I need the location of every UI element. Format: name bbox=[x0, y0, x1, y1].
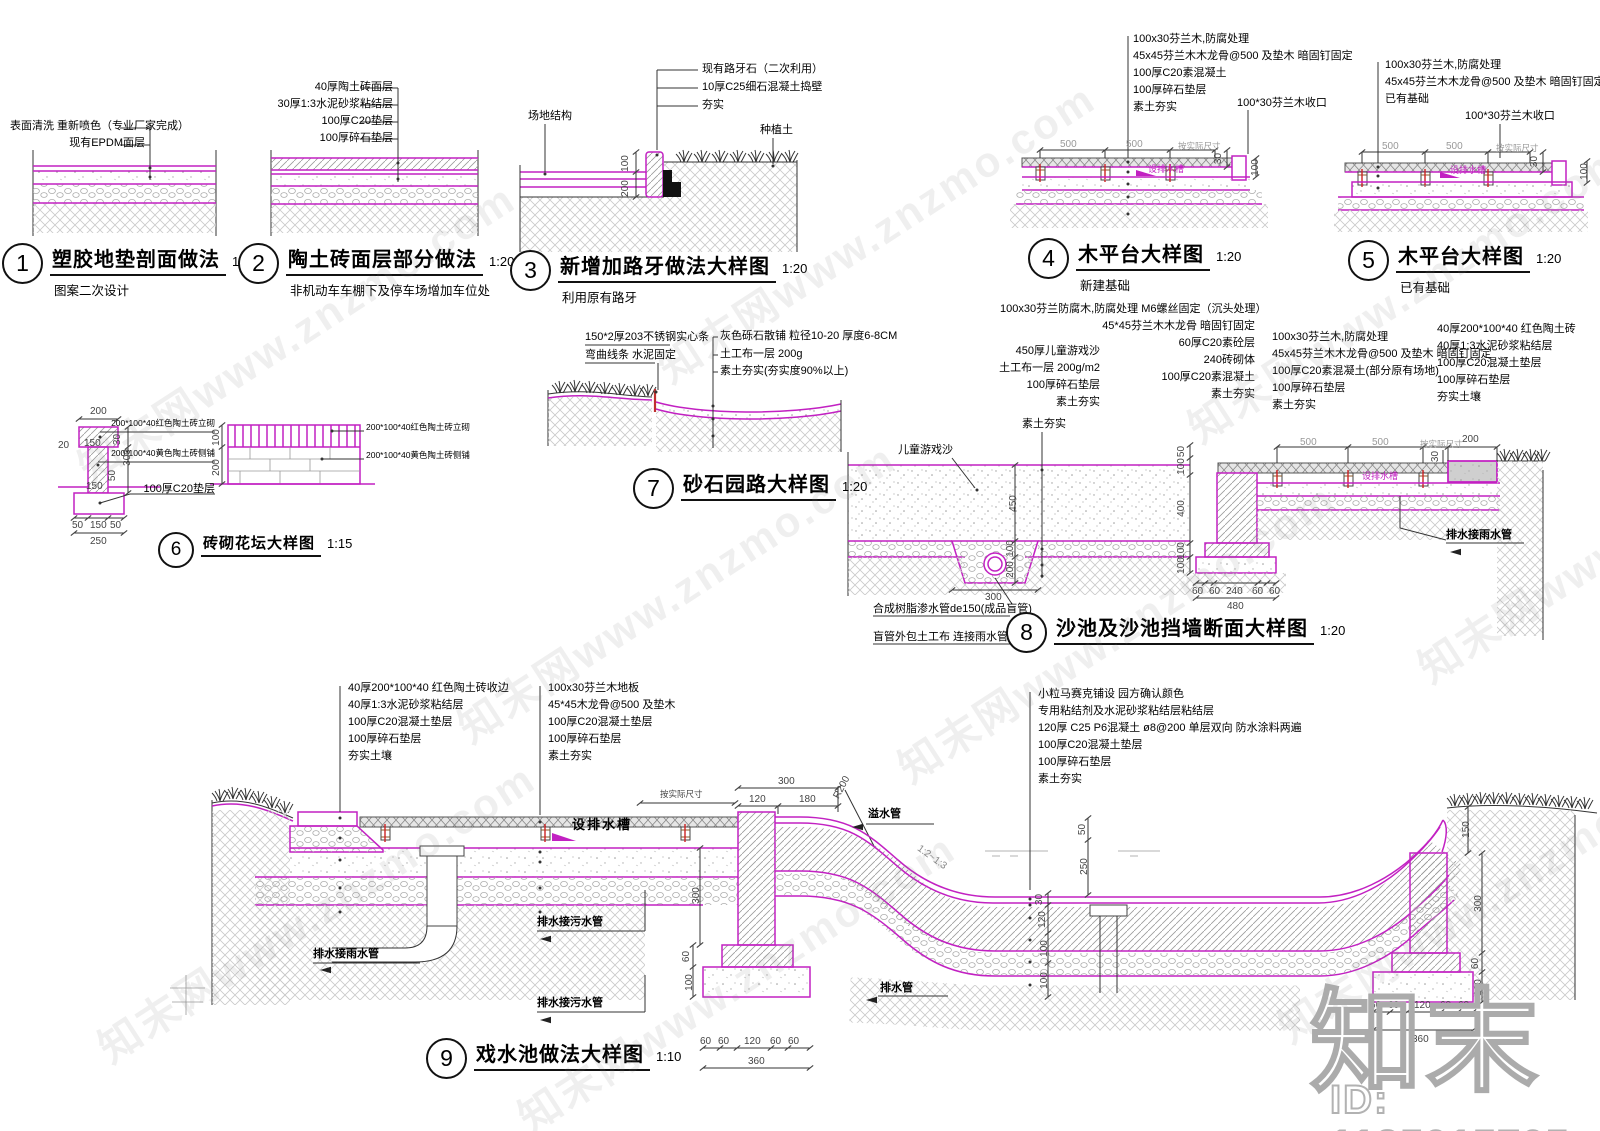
detail-title-6: 6 砖砌花坛大样图1:15 bbox=[158, 532, 352, 568]
material-label: 100厚C20混凝土垫层 bbox=[548, 716, 653, 729]
dim-text: 450 bbox=[1008, 495, 1019, 512]
dim-text: 30 bbox=[1213, 153, 1224, 164]
detail-4-drawing bbox=[1010, 36, 1268, 228]
material-label: 土工布一层 200g bbox=[720, 348, 803, 361]
detail-number: 5 bbox=[1348, 240, 1389, 281]
material-label: 小粒马赛克铺设 园方确认颜色 bbox=[1038, 688, 1184, 701]
dim-text: 400 bbox=[1176, 500, 1187, 517]
detail-number: 9 bbox=[426, 1038, 467, 1079]
material-label: 专用粘结剂及水泥砂浆粘结层粘结层 bbox=[1038, 705, 1214, 718]
dim-text: 200 bbox=[620, 180, 631, 197]
material-label: 10厚C25细石混凝土捣壁 bbox=[702, 81, 822, 94]
material-label: 100厚碎石垫层 bbox=[1133, 84, 1206, 97]
note-label: 设排水槽 bbox=[1148, 163, 1184, 176]
detail-subtitle: 新建基础 bbox=[1080, 275, 1241, 294]
dim-text: 200 bbox=[90, 406, 107, 417]
dim-text: 300 bbox=[778, 776, 795, 787]
material-label: 60厚C20素砼层 bbox=[1000, 337, 1255, 350]
detail-title-9: 9 戏水池做法大样图1:10 bbox=[426, 1038, 681, 1079]
material-label: 100厚碎石垫层 bbox=[548, 733, 621, 746]
material-label: 场地结构 bbox=[528, 110, 572, 123]
detail-title: 木平台大样图 bbox=[1396, 240, 1530, 273]
dim-text: 60 bbox=[1370, 1000, 1381, 1011]
material-label: 灰色砾石散铺 粒径10-20 厚度6-8CM bbox=[720, 330, 897, 343]
material-label: 100厚碎石垫层 bbox=[1437, 374, 1510, 387]
dim-text: 300 bbox=[985, 592, 1002, 603]
dim-text: 150 bbox=[86, 481, 103, 492]
dim-text: 300 bbox=[122, 449, 133, 466]
detail-number: 4 bbox=[1028, 238, 1069, 279]
dim-text: 60 bbox=[1470, 958, 1481, 969]
dim-text: 200 bbox=[211, 459, 222, 476]
material-label: 100厚C20垫层 bbox=[265, 115, 393, 128]
detail-scale: 1:10 bbox=[656, 1049, 681, 1064]
dim-text: 100 bbox=[211, 429, 222, 446]
detail-number: 6 bbox=[158, 532, 194, 568]
note-label: 排水管 bbox=[880, 982, 913, 995]
dim-text: 50 bbox=[1077, 824, 1088, 835]
note-label: 溢水管 bbox=[868, 808, 901, 821]
material-label: 100x30芬兰防腐木,防腐处理 M6螺丝固定（沉头处理） bbox=[1000, 303, 1255, 316]
dim-text: 50 bbox=[1176, 446, 1187, 457]
material-label: 100厚C20素混凝土 bbox=[1133, 67, 1227, 80]
detail-scale: 1:20 bbox=[782, 261, 807, 276]
dim-text: 100 bbox=[620, 155, 631, 172]
detail-title: 砂石园路大样图 bbox=[681, 468, 836, 501]
note-label: 排水接污水管 bbox=[537, 916, 603, 929]
material-label: 弯曲线条 水泥固定 bbox=[585, 349, 676, 362]
dim-text: 100 bbox=[1176, 458, 1187, 475]
detail-title-8: 8 沙池及沙池挡墙断面大样图1:20 bbox=[1006, 612, 1345, 653]
material-label: 已有基础 bbox=[1385, 93, 1429, 106]
dim-text: 250 bbox=[1079, 858, 1090, 875]
detail-title: 木平台大样图 bbox=[1076, 238, 1210, 271]
detail-title-1: 1 塑胶地垫剖面做法1:20 图案二次设计 bbox=[2, 243, 257, 299]
dim-text: 50 bbox=[110, 520, 121, 531]
dim-text: 60 bbox=[700, 1036, 711, 1047]
dim-text: 240 bbox=[1226, 586, 1243, 597]
dim-text: 300 bbox=[1473, 895, 1484, 912]
dim-text: 360 bbox=[1412, 1034, 1429, 1045]
note-label: 排水接雨水管 bbox=[313, 948, 379, 961]
detail-title-3: 3 新增加路牙做法大样图1:20 利用原有路牙 bbox=[510, 250, 807, 306]
material-label: 40厚200*100*40 红色陶土砖 bbox=[1437, 323, 1576, 336]
dim-text: 按实际尺寸 bbox=[1420, 439, 1463, 450]
material-label: 100厚C20混凝土垫层 bbox=[348, 716, 453, 729]
detail-number: 3 bbox=[510, 250, 551, 291]
detail-number: 1 bbox=[2, 243, 43, 284]
detail-scale: 1:20 bbox=[1320, 623, 1345, 638]
dim-text: 60 bbox=[718, 1036, 729, 1047]
dim-text: 60 bbox=[788, 1036, 799, 1047]
material-label: 45x45芬兰木木龙骨@500 及垫木 暗固钉固定 bbox=[1385, 76, 1600, 89]
dim-text: 30 bbox=[1529, 156, 1540, 167]
material-label: 素土夯实 bbox=[1038, 773, 1082, 786]
detail-subtitle: 利用原有路牙 bbox=[562, 287, 807, 306]
material-label: 45*45木龙骨@500 及垫木 bbox=[548, 699, 675, 712]
dim-text: 50 bbox=[72, 520, 83, 531]
material-label: 150*2厚203不锈钢实心条 bbox=[585, 331, 709, 344]
material-label: 100*30芬兰木收口 bbox=[1237, 97, 1327, 110]
material-label: 100厚碎石垫层 bbox=[1038, 756, 1111, 769]
detail-scale: 1:20 bbox=[1536, 251, 1561, 266]
dim-text: 100 bbox=[684, 974, 695, 991]
dim-text: 200 bbox=[1005, 561, 1016, 578]
dim-text: 100 bbox=[1250, 159, 1261, 176]
material-label: 种植土 bbox=[760, 124, 793, 137]
dim-text: 500 bbox=[1372, 437, 1389, 448]
note-label: 盲管外包土工布 连接雨水管网 bbox=[873, 631, 1019, 644]
dim-text: 60 bbox=[770, 1036, 781, 1047]
material-label: 素土夯实(夯实度90%以上) bbox=[720, 365, 848, 378]
material-label: 40厚1:3水泥砂浆粘结层 bbox=[348, 699, 464, 712]
material-label: 100厚碎石垫层 bbox=[265, 132, 393, 145]
detail-title-2: 2 陶土砖面层部分做法1:20 非机动车车棚下及停车场增加车位处 bbox=[238, 243, 514, 299]
material-label: 200*100*40黄色陶土砖侧铺 bbox=[88, 447, 215, 460]
dim-text: 60 bbox=[681, 951, 692, 962]
dim-text: 100 bbox=[1005, 540, 1016, 557]
material-label: 现有EPDM面层 bbox=[55, 137, 145, 150]
material-label: 现有路牙石（二次利用） bbox=[702, 63, 823, 76]
dim-text: 500 bbox=[1300, 437, 1317, 448]
note-label: 排水接雨水管 bbox=[1446, 529, 1512, 542]
dim-text: 120 bbox=[1037, 911, 1048, 928]
material-label: 40厚陶土砖面层 bbox=[265, 81, 393, 94]
material-label: 100x30芬兰木,防腐处理 bbox=[1133, 33, 1249, 46]
dim-text: 120 bbox=[749, 794, 766, 805]
dim-text: 480 bbox=[1227, 601, 1244, 612]
note-label: 素土夯实 bbox=[1022, 418, 1066, 431]
detail-scale: 1:20 bbox=[842, 479, 867, 494]
detail-title: 陶土砖面层部分做法 bbox=[286, 243, 483, 276]
material-label: 100厚碎石垫层 bbox=[348, 733, 421, 746]
dim-text: 500 bbox=[1060, 139, 1077, 150]
detail-scale: 1:15 bbox=[327, 536, 352, 551]
material-label: 200*100*40黄色陶土砖侧铺 bbox=[366, 449, 470, 462]
dim-text: 60 bbox=[1440, 1000, 1451, 1011]
detail-title: 戏水池做法大样图 bbox=[474, 1038, 650, 1071]
material-label: 100厚C20垫层 bbox=[120, 483, 215, 496]
material-label: 100x30芬兰木,防腐处理 bbox=[1385, 59, 1501, 72]
material-label: 100厚C20混凝土垫层 bbox=[1437, 357, 1542, 370]
note-label: 儿童游戏沙 bbox=[898, 444, 953, 457]
material-label: 素土夯实 bbox=[1133, 101, 1177, 114]
cad-detail-sheet: 表面清洗 重新喷色（专业厂家完成） 现有EPDM面层 1 塑胶地垫剖面做法1:2… bbox=[0, 0, 1600, 1131]
detail-title: 新增加路牙做法大样图 bbox=[558, 250, 776, 283]
material-label: 素土夯实 bbox=[1000, 388, 1255, 401]
dim-text: 300 bbox=[691, 887, 702, 904]
detail-number: 2 bbox=[238, 243, 279, 284]
detail-title: 塑胶地垫剖面做法 bbox=[50, 243, 226, 276]
detail-title-7: 7 砂石园路大样图1:20 bbox=[633, 468, 867, 509]
dim-text: 100 bbox=[1176, 557, 1187, 574]
dim-text: 50 bbox=[107, 470, 118, 481]
dim-text: 30 bbox=[1034, 894, 1045, 905]
material-label: 100x30芬兰木地板 bbox=[548, 682, 639, 695]
dim-text: 60 bbox=[1269, 586, 1280, 597]
dim-text: 60 bbox=[1209, 586, 1220, 597]
detail-title-4: 4 木平台大样图1:20 新建基础 bbox=[1028, 238, 1241, 294]
detail-subtitle: 已有基础 bbox=[1400, 277, 1561, 296]
dim-text: 150 bbox=[84, 438, 101, 449]
dim-text: 500 bbox=[1446, 141, 1463, 152]
dim-text: 20 bbox=[58, 440, 69, 451]
dim-text: 180 bbox=[799, 794, 816, 805]
note-label: 设排水槽 bbox=[1362, 470, 1398, 483]
material-label: 100厚C20素混凝土 bbox=[1000, 371, 1255, 384]
dim-text: 按实际尺寸 bbox=[1496, 143, 1539, 154]
dim-text: 100 bbox=[1039, 940, 1050, 957]
dim-text: 60 bbox=[1192, 586, 1203, 597]
detail-title-5: 5 木平台大样图1:20 已有基础 bbox=[1348, 240, 1561, 296]
material-label: 45*45芬兰木木龙骨 暗固钉固定 bbox=[1000, 320, 1255, 333]
dim-text: 按实际尺寸 bbox=[1178, 141, 1221, 152]
material-label: 240砖砌体 bbox=[1000, 354, 1255, 367]
dim-text: 60 bbox=[1252, 586, 1263, 597]
dim-text: 500 bbox=[1382, 141, 1399, 152]
dim-text: 120 bbox=[1414, 1000, 1431, 1011]
dim-text: 200 bbox=[1462, 434, 1479, 445]
material-label: 夯实 bbox=[702, 99, 724, 112]
detail-scale: 1:20 bbox=[1216, 249, 1241, 264]
material-label: 30厚1:3水泥砂浆粘结层 bbox=[265, 98, 393, 111]
material-label: 100厚C20素混凝土(部分原有场地) bbox=[1272, 365, 1439, 378]
detail-number: 8 bbox=[1006, 612, 1047, 653]
dim-text: 250 bbox=[90, 536, 107, 547]
dim-text: 30 bbox=[1430, 451, 1441, 462]
note-label: 排水接污水管 bbox=[537, 997, 603, 1010]
material-label: 45x45芬兰木木龙骨@500 及垫木 暗固钉固定 bbox=[1133, 50, 1353, 63]
detail-subtitle: 非机动车车棚下及停车场增加车位处 bbox=[290, 280, 514, 299]
material-label: 40厚1:3水泥砂浆粘结层 bbox=[1437, 340, 1553, 353]
material-label: 夯实土壤 bbox=[348, 750, 392, 763]
detail-title: 砖砌花坛大样图 bbox=[201, 532, 321, 557]
dim-text: 100 bbox=[1039, 972, 1050, 989]
dim-text: 60 bbox=[1458, 1000, 1469, 1011]
material-label: 120厚 C25 P6混凝土 ø8@200 单层双向 防水涂料两遍 bbox=[1038, 722, 1302, 735]
material-label: 100*30芬兰木收口 bbox=[1465, 110, 1555, 123]
dim-text: 60 bbox=[1388, 1000, 1399, 1011]
dim-text: 100 bbox=[1579, 163, 1590, 180]
material-label: 表面清洗 重新喷色（专业厂家完成） bbox=[10, 120, 145, 133]
detail-title: 沙池及沙池挡墙断面大样图 bbox=[1054, 612, 1314, 645]
dim-text: 120 bbox=[744, 1036, 761, 1047]
dim-text: 150 bbox=[1461, 821, 1472, 838]
detail-3-drawing bbox=[520, 70, 798, 252]
material-label: 40厚200*100*40 红色陶土砖收边 bbox=[348, 682, 509, 695]
dim-text: 150 bbox=[90, 520, 107, 531]
dim-text: 按实际尺寸 bbox=[660, 789, 703, 800]
note-label: 设排水槽 bbox=[572, 818, 632, 831]
dim-text: 500 bbox=[1126, 139, 1143, 150]
dim-text: 30 bbox=[112, 434, 123, 445]
material-label: 100厚C20混凝土垫层 bbox=[1038, 739, 1143, 752]
material-label: 素土夯实 bbox=[548, 750, 592, 763]
dim-text: 100 bbox=[1473, 979, 1484, 996]
dim-text: 360 bbox=[748, 1056, 765, 1067]
material-label: 夯实土壤 bbox=[1437, 391, 1481, 404]
material-label: 200*100*40红色陶土砖立砌 bbox=[366, 421, 470, 434]
material-label: 200*100*40红色陶土砖立砌 bbox=[88, 417, 215, 430]
note-label: 设排水槽 bbox=[1450, 164, 1486, 177]
material-label: 100x30芬兰木,防腐处理 bbox=[1272, 331, 1388, 344]
detail-number: 7 bbox=[633, 468, 674, 509]
detail-subtitle: 图案二次设计 bbox=[54, 280, 257, 299]
material-label: 100厚碎石垫层 bbox=[1272, 382, 1345, 395]
material-label: 素土夯实 bbox=[1272, 399, 1316, 412]
